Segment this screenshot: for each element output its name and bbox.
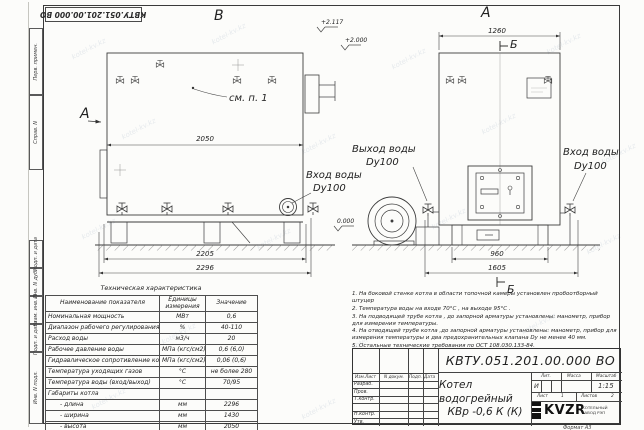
margin-box-sprav-n: Справ. N xyxy=(29,95,43,170)
sheets-label: Листов xyxy=(581,394,597,399)
elev-flue-label: +2.117 xyxy=(321,19,343,26)
section-b-marker-top xyxy=(500,41,508,51)
tb-head-izm: Изм.Лист xyxy=(355,375,376,380)
platform-valves-left-view xyxy=(117,203,318,215)
ground-line-right xyxy=(352,245,600,251)
elevation-marks xyxy=(317,27,361,231)
margin-box-podp-data-2: Подп. и дата xyxy=(29,324,43,352)
section-b-top-label: Б xyxy=(510,38,518,51)
mass-label: Масса xyxy=(567,374,581,379)
margin-box-inv-podl: Инв. N подл. xyxy=(29,352,43,424)
kvzr-logo-text: KVZR xyxy=(544,403,586,418)
tb-row-utv: Утв. xyxy=(354,420,364,425)
table-row: - ширинамм1430 xyxy=(46,411,258,422)
table-row: Гидравлическое сопротивление котлаМПа (к… xyxy=(46,356,258,367)
ground-line-left xyxy=(95,245,335,251)
dimensions-front-view xyxy=(425,32,578,277)
sheets-value: 2 xyxy=(611,394,614,399)
margin-box-perv-primen: Перв. примен. xyxy=(29,28,43,95)
doc-number: КВТУ.051.201.00.000 ВО xyxy=(438,349,622,373)
note-2: 2. Температура воды на входе 70°С , на в… xyxy=(352,306,620,313)
boiler-side-view xyxy=(100,53,335,243)
inlet-side-label-2: Dy100 xyxy=(313,183,346,194)
tb-row-tkontr: Т.контр. xyxy=(354,397,375,402)
lit-value: И xyxy=(534,382,539,390)
water-inlet-flange xyxy=(280,199,297,216)
note-4: 4. На отводящей трубе котла ,до запорной… xyxy=(352,328,620,342)
table-row: Рабочее давление водыМПа (кгс/см2)0,6 (6… xyxy=(46,345,258,356)
kvzr-logo-subtext: КОТЕЛЬНЫЙ ЗАВОД РЭП xyxy=(582,405,608,416)
product-name-line1: Котел водогрейный xyxy=(439,379,531,406)
margin-box-vzam-inv: Взам. инв. N xyxy=(29,296,43,324)
margin-box-podp-data-1: Подп. и дата xyxy=(29,240,43,268)
inlet-valve-icon xyxy=(565,204,575,216)
table-row: Номинальная мощностьМВт0,6 xyxy=(46,312,258,323)
tb-row-prov: Пров. xyxy=(354,390,368,395)
tech-col-units: Единицы измерения xyxy=(160,296,206,312)
note-3: 3. На подводящей трубе котла , до запорн… xyxy=(352,314,620,328)
table-row: Расход водым3/ч20 xyxy=(46,334,258,345)
tech-col-value: Значение xyxy=(206,296,258,312)
tb-head-data: Дата xyxy=(424,375,435,380)
outlet-label-2: Dy100 xyxy=(366,157,399,168)
dim-a-base: 960 xyxy=(490,250,504,258)
drawing-sheet: kotel-kv.kz kotel-kv.kz kotel-kv.kz kote… xyxy=(0,0,644,430)
outlet-label-1: Выход воды xyxy=(352,144,416,155)
section-b-marker-bottom xyxy=(497,277,505,287)
table-row: - высотамм2050 xyxy=(46,422,258,430)
table-row: Температура воды (вход/выход)°С70/95 xyxy=(46,378,258,389)
dim-a-width: 1260 xyxy=(488,27,506,35)
kvzr-logo-mark xyxy=(532,402,541,419)
view-b-label: В xyxy=(214,8,224,24)
table-row: Габариты котла xyxy=(46,389,258,400)
tb-row-razrab: Разраб. xyxy=(354,382,373,387)
callout-leader xyxy=(194,89,227,97)
table-row: Диапазон рабочего регулирования%40-110 xyxy=(46,323,258,334)
callout-label: см. п. 1 xyxy=(229,93,268,104)
note-1: 1. На боковой стенке котла в области топ… xyxy=(352,291,620,305)
elev-pipe-label: +2.000 xyxy=(345,37,367,44)
inlet-side-label-1: Вход воды xyxy=(306,170,362,181)
top-stamp-rotated: КВТУ.051.201.00.000 ВО xyxy=(45,7,142,22)
inlet-front-leader xyxy=(573,173,586,201)
tech-col-name: Наименование показателя xyxy=(46,296,160,312)
table-row: - длинамм2296 xyxy=(46,400,258,411)
outlet-leader xyxy=(413,167,427,201)
tech-table: Наименование показателя Единицы измерени… xyxy=(45,295,258,430)
scale-label: Масштаб xyxy=(596,374,616,379)
view-a-label: А xyxy=(480,5,491,21)
inlet-side-leader xyxy=(292,193,311,203)
product-name: Котел водогрейный КВр -0,6 К (К) xyxy=(439,373,531,426)
dim-b-overall: 2296 xyxy=(196,264,214,272)
tb-head-podp: Подп. xyxy=(409,375,422,380)
sheet-value: 1 xyxy=(561,394,564,399)
scale-value: 1:15 xyxy=(598,382,614,390)
outlet-valve-icon xyxy=(423,204,433,216)
roof-valves-left-view xyxy=(116,77,276,84)
elev-ground-label: 0.000 xyxy=(337,218,354,225)
view-arrow-a xyxy=(88,121,101,122)
inlet-front-label-2: Dy100 xyxy=(574,161,607,172)
view-arrow-a-label: А xyxy=(79,106,90,122)
tb-row-nkontr: Н.контр. xyxy=(354,412,375,417)
callout-dot xyxy=(192,87,194,89)
dim-b-base: 2205 xyxy=(196,250,214,258)
sheet-label: Лист xyxy=(537,394,548,399)
technical-notes: 1. На боковой стенке котла в области топ… xyxy=(352,291,620,351)
tb-head-ndoc: N докум. xyxy=(384,375,404,380)
dim-a-overall: 1605 xyxy=(488,264,506,272)
product-name-line2: КВр -0,6 К (К) xyxy=(448,406,523,420)
roof-valves-front-view xyxy=(446,77,552,84)
lit-label: Лит. xyxy=(541,374,551,379)
safety-valve-icon xyxy=(156,61,164,68)
tech-table-title: Техническая характеристика xyxy=(45,284,257,292)
margin-box-inv-dubl: Инв. N дубл. xyxy=(29,268,43,296)
table-row: Температура уходящих газов°Сне более 280 xyxy=(46,367,258,378)
inlet-front-label-1: Вход воды xyxy=(563,147,619,158)
tech-characteristics: Техническая характеристика Наименование … xyxy=(45,284,257,430)
dim-b-width: 2050 xyxy=(196,135,214,143)
format-note: Формат А3 xyxy=(563,425,591,430)
